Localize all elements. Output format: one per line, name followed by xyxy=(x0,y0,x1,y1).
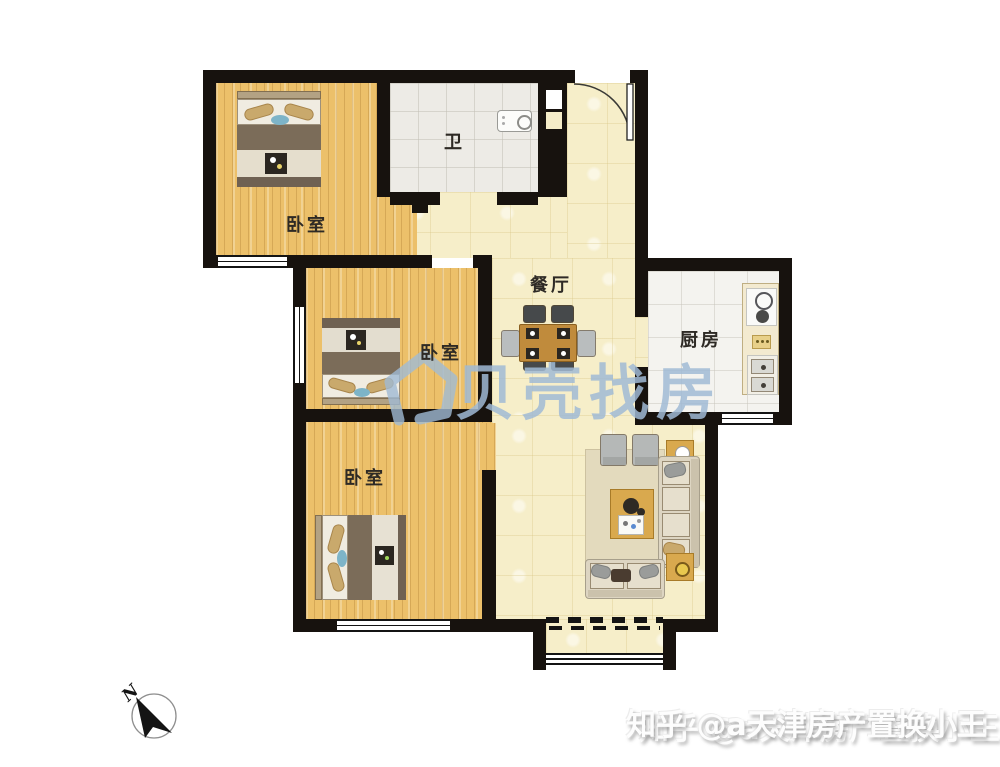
entrance-door-leaf xyxy=(627,84,633,140)
compass: N xyxy=(117,680,176,738)
room-label-bedroom-top: 卧室 xyxy=(286,211,328,237)
north-arrow-icon xyxy=(136,697,172,738)
entrance-door-arc xyxy=(574,84,630,140)
beike-logo-icon xyxy=(390,356,452,420)
room-label-dining: 餐厅 xyxy=(530,271,572,297)
zhihu-watermark-text: 知乎 @a天津房产置换小王 xyxy=(626,700,987,744)
room-label-bathroom: 卫 xyxy=(444,128,462,154)
floorplan-image: N 卧室 卫 餐厅 厨房 卧室 卧室 贝壳找房 知乎 @a天津房产置换小王 知乎… xyxy=(0,0,1000,767)
beike-watermark-text: 贝壳找房 xyxy=(455,345,723,432)
room-label-bedroom-bottom: 卧室 xyxy=(344,464,386,490)
zhihu-watermark: 知乎 @a天津房产置换小王 知乎 @a天津房产置换小王 xyxy=(626,700,996,748)
